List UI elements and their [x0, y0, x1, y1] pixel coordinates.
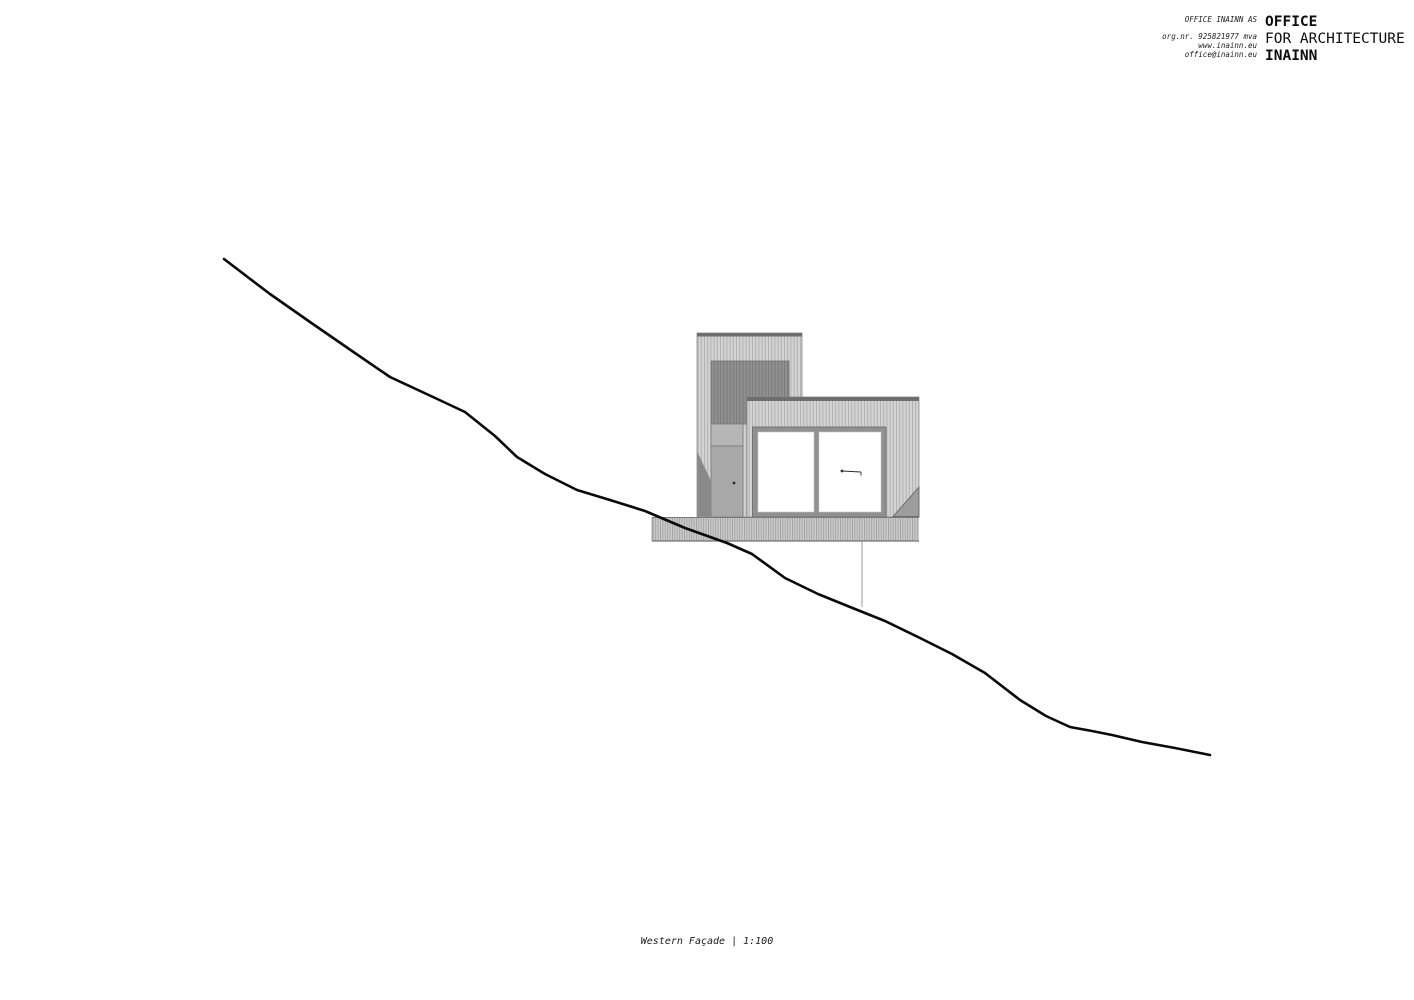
lower-volume [747, 397, 919, 517]
facade-elevation-drawing [0, 0, 1414, 1000]
entrance-door [711, 446, 743, 517]
door-handle [733, 482, 736, 485]
drawing-caption: Western Façade | 1:100 [0, 935, 1414, 949]
lower-volume-roof-cap [747, 397, 919, 401]
sliding-window [753, 427, 887, 517]
window-pane-left [758, 432, 814, 512]
drawing-sheet: { "header": { "info": { "company": "OFFI… [0, 0, 1414, 1000]
upper-volume-roof-cap [697, 333, 802, 337]
window-pane-right [819, 432, 881, 512]
entrance-transom-panel [711, 424, 743, 446]
